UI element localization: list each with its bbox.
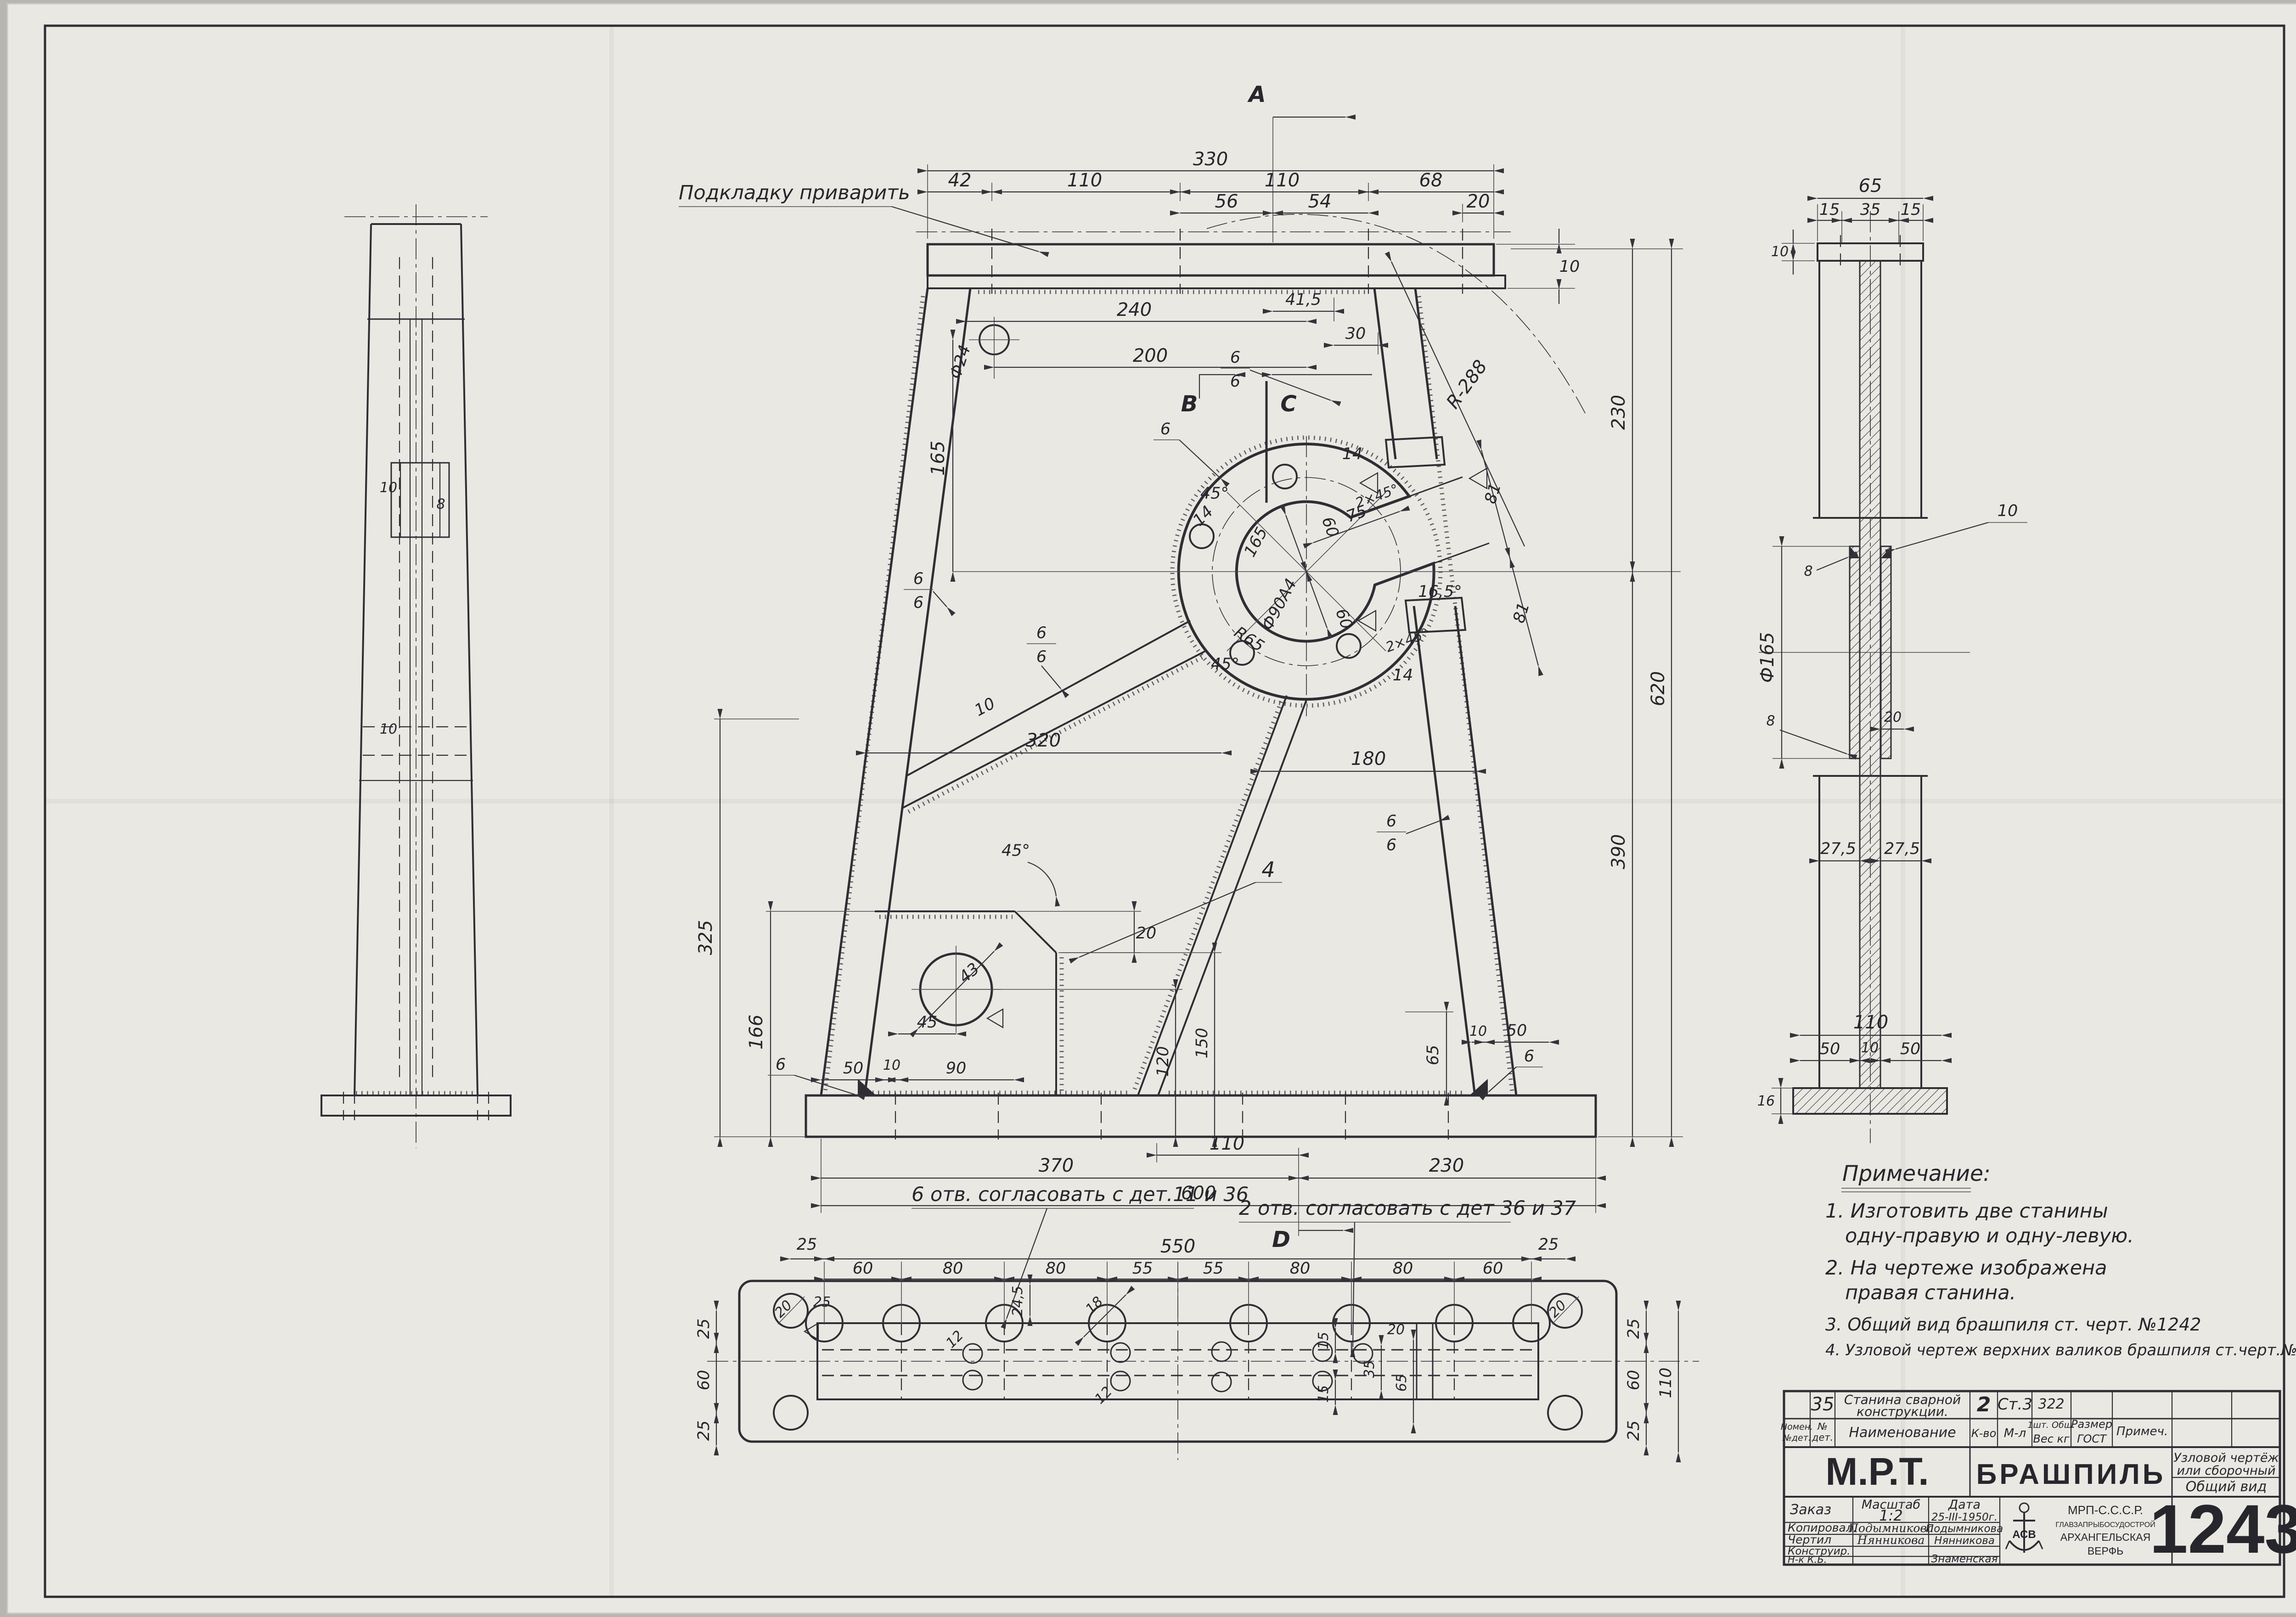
dim-25-rv1: 25 <box>1625 1319 1643 1339</box>
dim-50-rbase: 50 <box>1507 1022 1527 1040</box>
tb-sig-copied: Подымникова <box>1926 1523 2003 1535</box>
dim-15-rv2: 15 <box>1901 201 1921 219</box>
note-line-5: 3. Общий вид брашпиля ст. черт. №1242 <box>1825 1314 2201 1335</box>
dim-320: 320 <box>1026 730 1061 751</box>
dim-54: 54 <box>1308 191 1332 212</box>
dim-10-left-lower: 10 <box>380 721 397 737</box>
dim-55-2: 55 <box>1203 1259 1224 1278</box>
dim-390: 390 <box>1608 834 1629 869</box>
tb-qty: 2 <box>1977 1393 1991 1416</box>
dim-8-boss-top: 8 <box>1804 563 1812 579</box>
dim-10-cap: 10 <box>1771 244 1789 260</box>
dim-180: 180 <box>1351 748 1386 769</box>
tb-name-2: конструкции. <box>1857 1404 1948 1419</box>
tb-h-name: Наименование <box>1849 1425 1956 1441</box>
note-pad-weld: Подкладку приварить <box>679 181 910 204</box>
blueprint-sheet: 10 8 10 А R-288 <box>0 0 2296 1617</box>
dim-42: 42 <box>948 170 972 191</box>
dim-60-2: 60 <box>1483 1259 1503 1278</box>
tb-row-copied: Копировал. <box>1788 1521 1857 1534</box>
tb-row-drawn: Чертил <box>1788 1533 1831 1546</box>
tb-h-nomen-2: №дет. <box>1782 1433 1811 1443</box>
dim-120: 120 <box>1154 1046 1172 1077</box>
dim-55-1: 55 <box>1132 1259 1153 1278</box>
tb-h-nomen-1: Номен. <box>1781 1422 1813 1432</box>
tb-material: Ст.3 <box>1998 1395 2032 1414</box>
dim-27-5-a: 27,5 <box>1820 840 1856 858</box>
dim-65: 65 <box>1424 1045 1442 1066</box>
tb-doc-2: или сборочный <box>2177 1464 2275 1478</box>
note-line-2: одну-правую и одну-левую. <box>1845 1224 2134 1247</box>
dim-80-1: 80 <box>943 1259 963 1278</box>
dim-200: 200 <box>1133 345 1168 366</box>
tb-company-2: ГЛАВЗАПРЫБОСУДОСТРОЙ <box>2055 1520 2155 1529</box>
section-a-label: А <box>1247 82 1266 107</box>
dim-27-5-b: 27,5 <box>1884 840 1920 858</box>
dim-30: 30 <box>1345 325 1366 343</box>
weld-6-6-brace1-b: 6 <box>1036 648 1047 666</box>
dim-60-rv: 60 <box>1625 1370 1643 1391</box>
dim-10-left-web: 10 <box>380 480 397 496</box>
dim-45deg-gusset: 45° <box>1002 842 1030 860</box>
dim-150: 150 <box>1193 1028 1211 1059</box>
tb-date-label: Дата <box>1948 1498 1981 1512</box>
dim-35: 35 <box>1362 1360 1378 1378</box>
dim-16-5deg: 16,5° <box>1418 583 1462 601</box>
dim-230-v: 230 <box>1608 395 1629 430</box>
note-2-holes: 2 отв. согласовать с дет 36 и 37 <box>1239 1197 1576 1220</box>
weld-6-6-rleg: 6 <box>1386 812 1396 831</box>
dim-166: 166 <box>746 1015 767 1050</box>
weld-6-6-leg: 6 <box>913 570 923 588</box>
dim-110-base: 110 <box>1210 1133 1244 1154</box>
dim-80-2: 80 <box>1046 1259 1066 1278</box>
dim-25-l: 25 <box>797 1235 817 1254</box>
notes-title: Примечание: <box>1842 1161 1991 1186</box>
dim-20-boss: 20 <box>1884 709 1902 725</box>
weld-6-base-l: 6 <box>776 1056 786 1074</box>
note-6-holes: 6 отв. согласовать с дет.11 и 36 <box>912 1183 1249 1206</box>
dim-16: 16 <box>1757 1093 1775 1109</box>
dim-25-lv2: 25 <box>695 1420 713 1441</box>
dim-110a: 110 <box>1067 170 1102 191</box>
dim-330: 330 <box>1193 149 1228 170</box>
tb-weight: 322 <box>2038 1396 2064 1412</box>
tb-h-ves: Вес кг <box>2033 1432 2070 1445</box>
dim-370: 370 <box>1039 1155 1074 1176</box>
tb-h-no-1: № <box>1817 1421 1828 1432</box>
dim-50-rv1: 50 <box>1820 1040 1840 1058</box>
dim-45-gusset: 45 <box>917 1013 938 1032</box>
dim-60-lv: 60 <box>695 1370 713 1391</box>
tb-h-mat: М-л <box>2004 1426 2026 1440</box>
dim-68: 68 <box>1419 170 1443 191</box>
tb-item-no: 35 <box>1811 1394 1835 1415</box>
tb-company-4: ВЕРФЬ <box>2088 1545 2123 1557</box>
dim-41-5: 41,5 <box>1285 291 1321 309</box>
dim-620: 620 <box>1648 671 1669 706</box>
section-b-label: В <box>1181 391 1198 417</box>
tb-h-prim: Примеч. <box>2116 1425 2168 1438</box>
tb-sig-chief: Знаменская <box>1931 1553 1998 1565</box>
note-line-6: 4. Узловой чертеж верхних валиков брашпи… <box>1825 1341 2296 1359</box>
dim-f165: Ф165 <box>1757 632 1778 683</box>
tb-h-sht: 1шт. Общ. <box>2027 1420 2075 1430</box>
dim-20-plan: 20 <box>1387 1322 1405 1338</box>
dim-45deg-b: 45° <box>1211 655 1239 674</box>
dim-10-plate: 10 <box>1559 258 1580 276</box>
note-line-4: правая станина. <box>1845 1281 2016 1304</box>
weld-6-6-top: 6 <box>1230 348 1240 367</box>
tb-product: БРАШПИЛЬ <box>1976 1459 2166 1490</box>
tb-doc-1: Узловой чертёж <box>2173 1451 2279 1465</box>
dim-20: 20 <box>1467 191 1490 212</box>
dim-25-chamfer: 25 <box>813 1294 831 1310</box>
section-d-label: D <box>1272 1227 1290 1252</box>
dim-165-v: 165 <box>928 441 949 476</box>
weld-6-6-rleg-b: 6 <box>1386 836 1396 854</box>
dim-20-gusset: 20 <box>1136 924 1157 943</box>
callout-4: 4 <box>1261 857 1275 882</box>
tb-h-razmer: Размер <box>2071 1418 2112 1431</box>
drawing-number: 1243 <box>2150 1490 2296 1567</box>
dim-65-plan: 65 <box>1394 1374 1410 1392</box>
dim-50-rv2: 50 <box>1900 1040 1921 1058</box>
dim-25-r: 25 <box>1538 1235 1559 1254</box>
dim-14-pad-b: 14 <box>1393 666 1413 685</box>
tb-h-qty: К-во <box>1971 1427 1997 1440</box>
dim-45deg-a: 45° <box>1200 484 1229 503</box>
dim-110-rv: 110 <box>1853 1012 1888 1033</box>
weld-6-base-r: 6 <box>1524 1047 1534 1066</box>
tb-sig-copied-script: Подымникова <box>1848 1522 1934 1535</box>
dim-8-left-web: 8 <box>436 496 445 512</box>
tb-h-no-2: дет. <box>1812 1432 1833 1443</box>
weld-6-6-brace1: 6 <box>1036 624 1047 642</box>
dim-60-1: 60 <box>853 1259 873 1278</box>
dim-10-gusset: 10 <box>883 1057 900 1073</box>
weld-6-flag: 6 <box>1160 420 1171 438</box>
dim-24-5: 24,5 <box>1010 1286 1026 1317</box>
dim-240: 240 <box>1117 299 1152 320</box>
dim-14-pad-a: 14 <box>1342 445 1363 463</box>
section-c-label: С <box>1280 391 1296 417</box>
tb-logo-letters: АСВ <box>2012 1528 2036 1541</box>
dim-10-rv: 10 <box>1861 1040 1879 1056</box>
tb-order: Заказ <box>1790 1502 1831 1518</box>
tb-h-gost: ГОСТ <box>2077 1432 2107 1445</box>
note-line-3: 2. На чертеже изображена <box>1825 1257 2107 1280</box>
tb-company-1: МРП-С.С.С.Р. <box>2068 1503 2143 1517</box>
dim-80-3: 80 <box>1290 1259 1311 1278</box>
dim-10-boss: 10 <box>1998 502 2018 520</box>
weld-6-6-leg-b: 6 <box>913 594 923 612</box>
tb-date-value: 25-III-1950г. <box>1931 1511 1998 1523</box>
tb-sig-drawn-script: Нянникова <box>1857 1533 1925 1547</box>
dim-15-b: 15 <box>1316 1385 1332 1403</box>
dim-25-rv2: 25 <box>1625 1420 1643 1441</box>
dim-15-rv1: 15 <box>1819 201 1840 219</box>
dim-90: 90 <box>946 1059 967 1078</box>
dim-65-rv: 65 <box>1859 175 1882 197</box>
dim-15-a: 15 <box>1316 1332 1332 1349</box>
dim-325: 325 <box>695 920 716 955</box>
dim-35-rv: 35 <box>1860 201 1881 219</box>
tb-company-3: АРХАНГЕЛЬСКАЯ <box>2060 1531 2150 1543</box>
dim-230-base: 230 <box>1429 1155 1464 1176</box>
dim-80-4: 80 <box>1393 1259 1413 1278</box>
tb-sig-drawn: Нянникова <box>1934 1535 1995 1547</box>
tb-org: М.Р.Т. <box>1825 1450 1929 1493</box>
dim-110b: 110 <box>1265 170 1300 191</box>
dim-550: 550 <box>1160 1236 1195 1257</box>
dim-110-plan: 110 <box>1657 1368 1675 1398</box>
dim-8-boss-bot: 8 <box>1766 713 1775 729</box>
dim-56: 56 <box>1215 191 1238 212</box>
dim-10-rbase: 10 <box>1469 1023 1487 1039</box>
dim-50-gusset: 50 <box>843 1059 864 1078</box>
dim-25-lv1: 25 <box>695 1319 713 1339</box>
note-line-1: 1. Изготовить две станины <box>1825 1200 2108 1223</box>
tb-row-chief: Н-к К.Б. <box>1788 1554 1827 1565</box>
